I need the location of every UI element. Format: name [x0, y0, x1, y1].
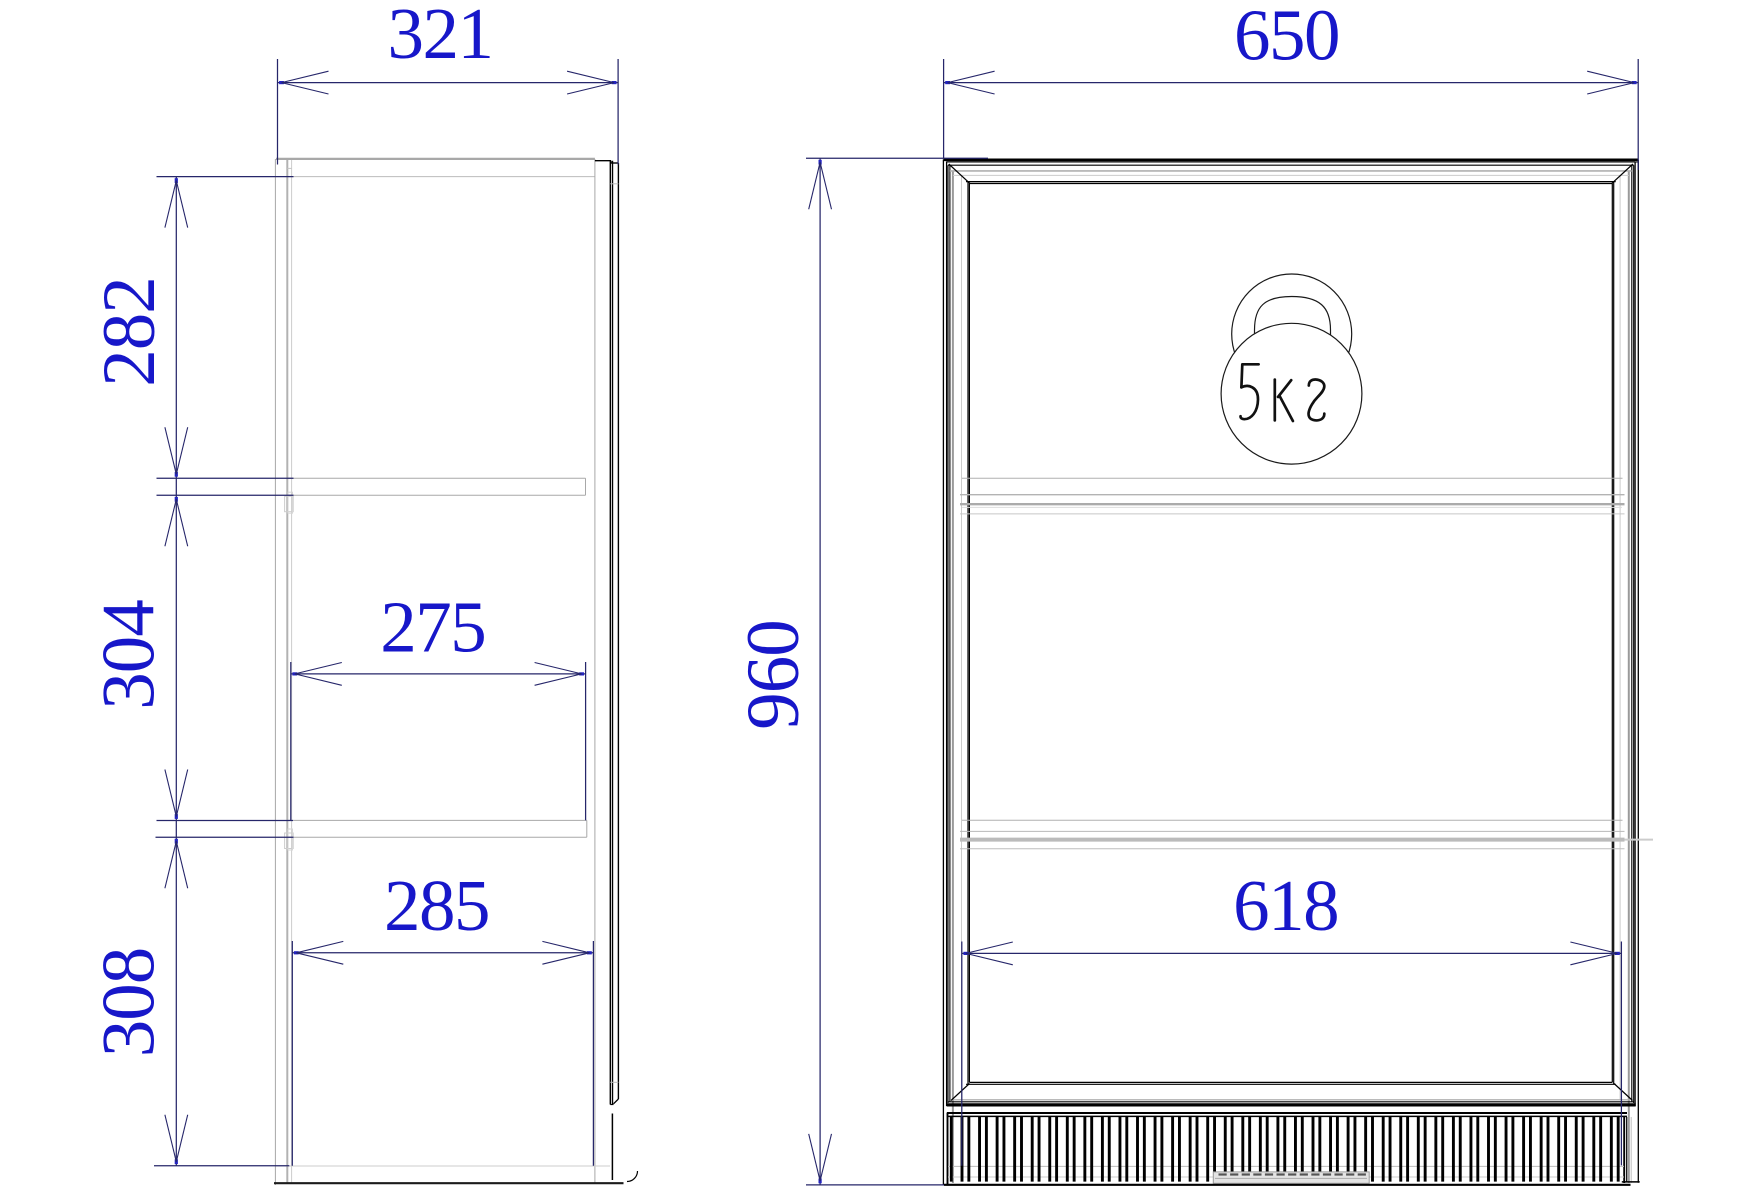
- svg-text:321: 321: [388, 0, 493, 74]
- svg-text:282: 282: [88, 277, 171, 387]
- svg-text:275: 275: [380, 587, 485, 668]
- svg-text:650: 650: [1234, 0, 1339, 76]
- svg-text:285: 285: [384, 865, 489, 946]
- svg-text:960: 960: [732, 620, 815, 730]
- svg-text:304: 304: [88, 600, 171, 710]
- svg-text:618: 618: [1233, 865, 1338, 946]
- svg-text:308: 308: [88, 948, 171, 1058]
